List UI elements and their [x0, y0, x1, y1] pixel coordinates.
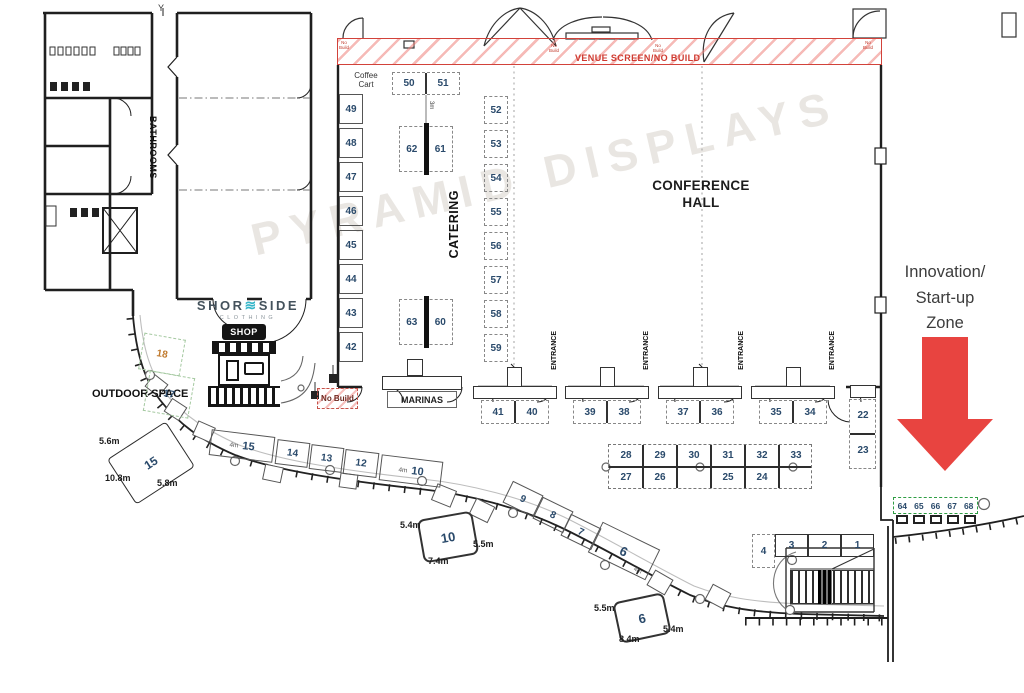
shop-icon: SHOP	[206, 322, 282, 412]
booth-4[interactable]: 4	[752, 534, 775, 568]
booth-29[interactable]: 29	[643, 445, 677, 466]
booth-57[interactable]: 57	[484, 266, 508, 294]
booth-39[interactable]: 39	[574, 401, 606, 423]
venue-floor-plan: PYRAMID DISPLAYS	[0, 0, 1024, 693]
bathrooms-label: BATHROOMS	[148, 116, 158, 179]
brand-text-post: SIDE	[259, 298, 299, 313]
coffee-label-line1: Coffee	[348, 71, 384, 80]
dim-label: 5.6m	[99, 436, 120, 446]
booth-40[interactable]: 40	[516, 401, 548, 423]
booth-12[interactable]: 12	[343, 449, 380, 478]
booth-13[interactable]: 13	[309, 444, 345, 473]
booth-53[interactable]: 53	[484, 130, 508, 158]
booth-25[interactable]: 25	[711, 467, 745, 488]
booth-32[interactable]: 32	[745, 445, 779, 466]
shoreside-logo: SHOR≋SIDE CLOTHING	[188, 297, 308, 321]
booth-10-number: 10	[411, 465, 425, 478]
entrance-label-3: ENTRANCE	[738, 331, 745, 370]
booth-48[interactable]: 48	[339, 128, 363, 158]
booth-23[interactable]: 23	[846, 440, 880, 461]
conference-hall-label: CONFERENCE HALL	[645, 178, 757, 212]
booth-2[interactable]: 2	[808, 534, 841, 557]
counter-37-36	[658, 386, 742, 399]
kiosk	[600, 367, 615, 387]
startup-stand	[964, 515, 976, 524]
booth-33[interactable]: 33	[779, 445, 813, 466]
booth-67[interactable]: 67	[944, 501, 961, 511]
dim-label: 10.8m	[105, 473, 131, 483]
booth-45[interactable]: 45	[339, 230, 363, 260]
booth-divider	[850, 433, 875, 435]
booth-50[interactable]: 50	[393, 73, 425, 94]
booth-41[interactable]: 41	[482, 401, 514, 423]
shop-door	[226, 360, 239, 381]
booth-28[interactable]: 28	[609, 445, 643, 466]
no-build-tag: No Build	[336, 41, 352, 51]
booth-60[interactable]: 60	[429, 300, 453, 344]
booth-54[interactable]: 54	[484, 164, 508, 192]
shop-window	[244, 362, 264, 375]
booth-65[interactable]: 65	[911, 501, 928, 511]
dim-label: 8.4m	[619, 634, 640, 644]
marinas-kiosk	[407, 359, 423, 376]
counter-39-38	[565, 386, 649, 399]
booth-38[interactable]: 38	[608, 401, 640, 423]
booth-63[interactable]: 63	[400, 300, 424, 344]
shop-body	[218, 354, 270, 386]
booth-18[interactable]: 18	[138, 333, 186, 377]
conference-hall-label-line1: CONFERENCE	[645, 178, 757, 195]
shop-awning	[212, 341, 276, 354]
booth-pair-50-51: 50 51	[392, 72, 460, 95]
innovation-zone-line1: Innovation/	[890, 260, 1000, 286]
booth-36[interactable]: 36	[701, 401, 733, 423]
dim-label: 5.4m	[663, 624, 684, 634]
rooms-block-walls	[168, 13, 311, 343]
booth-47[interactable]: 47	[339, 162, 363, 192]
toilet-stalls	[50, 82, 99, 217]
bathroom-fixtures	[46, 47, 140, 226]
dim-label: 7.4m	[428, 556, 449, 566]
dim-label: 5.5m	[594, 603, 615, 613]
dim-4m: 4m	[632, 566, 642, 575]
conference-hall-label-line2: HALL	[645, 195, 757, 212]
dim-4m: 4m	[398, 466, 408, 474]
booth-26[interactable]: 26	[643, 467, 677, 488]
venue-screen-label: VENUE SCREEN/NO BUILD	[575, 53, 700, 63]
booth-51[interactable]: 51	[427, 73, 459, 94]
booth-46[interactable]: 46	[339, 196, 363, 226]
booth-30[interactable]: 30	[677, 445, 711, 466]
booth-1[interactable]: 1	[841, 534, 874, 557]
no-build-tag: No Build	[650, 44, 666, 54]
coffee-label-line2: Cart	[348, 80, 384, 89]
booth-44[interactable]: 44	[339, 264, 363, 294]
brand-text-pre: SHOR	[197, 298, 245, 313]
dim-label: 5.5m	[473, 539, 494, 549]
bathroom-block-walls	[43, 8, 163, 316]
counter-35-34	[751, 386, 835, 399]
no-build-tag: No Build	[546, 44, 562, 54]
booth-24[interactable]: 24	[745, 467, 779, 488]
dim-3m-label: 3m	[428, 101, 434, 109]
right-bottom-walls	[745, 400, 1024, 662]
dim-label: 5.4m	[400, 520, 421, 530]
booth-68[interactable]: 68	[960, 501, 977, 511]
booth-col-22-23: 22 23	[849, 399, 876, 469]
catering-label: CATERING	[447, 190, 461, 258]
wave-icon: ≋	[244, 297, 258, 313]
shop-sign: SHOP	[222, 324, 266, 340]
booth-66[interactable]: 66	[927, 501, 944, 511]
booth-pair-63-60: 63 60	[399, 299, 453, 345]
kiosk	[693, 367, 708, 387]
booth-15-number: 15	[242, 440, 256, 453]
booth-61[interactable]: 61	[429, 127, 453, 171]
entrance-label-2: ENTRANCE	[643, 331, 650, 370]
entrance-label-4: ENTRANCE	[829, 331, 836, 370]
booth-42[interactable]: 42	[339, 332, 363, 362]
kiosk	[786, 367, 801, 387]
booth-27[interactable]: 27	[609, 467, 643, 488]
booth-35[interactable]: 35	[760, 401, 792, 423]
startup-stand	[913, 515, 925, 524]
counter-22	[850, 385, 876, 398]
entrance-label-1: ENTRANCE	[551, 331, 558, 370]
booth-56[interactable]: 56	[484, 232, 508, 260]
booth-14[interactable]: 14	[275, 439, 311, 468]
island-booths: 28 29 30 31 32 33 27 26 25 24	[608, 444, 812, 489]
startup-stand	[947, 515, 959, 524]
booth-31[interactable]: 31	[711, 445, 745, 466]
startup-stand	[930, 515, 942, 524]
stairs	[790, 570, 874, 604]
coffee-cart-label: Coffee Cart	[348, 71, 384, 89]
marinas-counter	[382, 376, 462, 390]
startup-strip: 64 65 66 67 68	[893, 497, 978, 514]
counter-41-40	[473, 386, 557, 399]
booth-34[interactable]: 34	[794, 401, 826, 423]
kiosk	[507, 367, 522, 387]
innovation-zone-label: Innovation/ Start-up Zone	[890, 260, 1000, 337]
booth-pair-62-61: 62 61	[399, 126, 453, 172]
booth-62[interactable]: 62	[400, 127, 424, 171]
booth-17[interactable]: 17	[143, 370, 195, 418]
elevator	[103, 208, 137, 253]
booth-43[interactable]: 43	[339, 298, 363, 328]
booth-3[interactable]: 3	[775, 534, 808, 557]
startup-zone-arrow-icon	[897, 337, 993, 471]
booth-pair-35-34: 35 34	[759, 400, 827, 424]
booth-6-number: 6	[617, 543, 630, 560]
dim-label: 5.8m	[157, 478, 178, 488]
booth-49[interactable]: 49	[339, 94, 363, 124]
booth-pair-41-40: 41 40	[481, 400, 549, 424]
grid-label-y: Y	[158, 3, 164, 13]
stairs-dark-section	[818, 570, 832, 604]
shop-steps	[208, 386, 280, 407]
booth-pair-39-38: 39 38	[573, 400, 641, 424]
brand-subtext: CLOTHING	[188, 315, 308, 321]
booth-59[interactable]: 59	[484, 334, 508, 362]
booth-55[interactable]: 55	[484, 198, 508, 226]
booth-37[interactable]: 37	[667, 401, 699, 423]
startup-stand	[896, 515, 908, 524]
booth-58[interactable]: 58	[484, 300, 508, 328]
booth-52[interactable]: 52	[484, 96, 508, 124]
innovation-zone-line3: Zone	[890, 311, 1000, 337]
marinas-label-box: MARINAS	[387, 391, 457, 408]
dim-4m: 4m	[229, 441, 239, 449]
booth-22[interactable]: 22	[846, 405, 880, 426]
no-build-zone: No Build	[317, 388, 358, 409]
no-build-tag: No Build	[860, 41, 876, 51]
booth-pair-37-36: 37 36	[666, 400, 734, 424]
booth-64[interactable]: 64	[894, 501, 911, 511]
innovation-zone-line2: Start-up	[890, 286, 1000, 312]
